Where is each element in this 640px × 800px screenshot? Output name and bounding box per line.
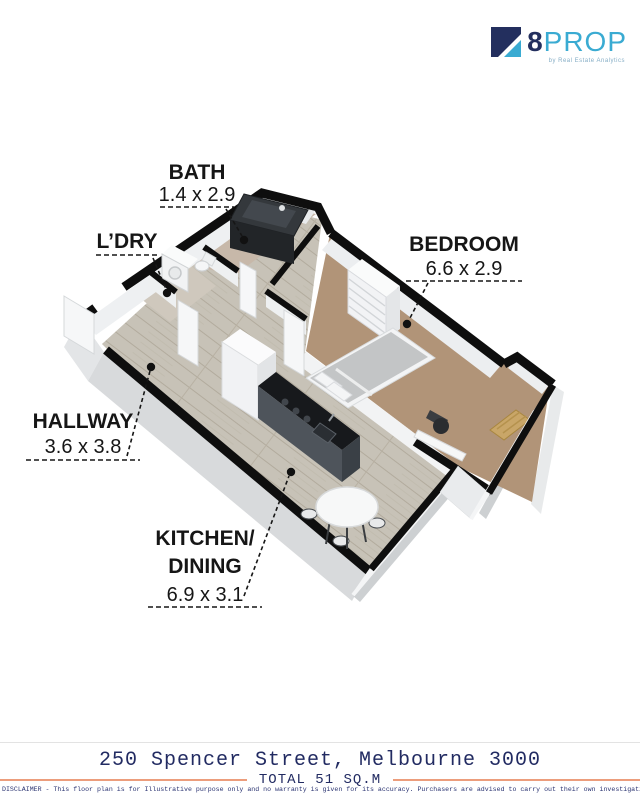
cooktop-burner <box>304 416 311 423</box>
label-kitchen: KITCHEN/ <box>155 527 254 550</box>
property-address: 250 Spencer Street, Melbourne 3000 <box>0 749 640 772</box>
leader-dot-bedroom <box>403 320 411 328</box>
label-bath: BATH <box>169 161 226 184</box>
leader-dot-bath <box>240 236 248 244</box>
cooktop-burner <box>293 408 300 415</box>
bath-door <box>240 262 256 318</box>
leader-dot-ldry <box>163 289 171 297</box>
accent-line-left <box>0 779 247 781</box>
label-bedroom: BEDROOM <box>409 233 519 256</box>
label-kitchen-dims: 6.9 x 3.1 <box>167 584 244 606</box>
accent-line-right <box>393 779 640 781</box>
bedroom-door <box>284 310 304 376</box>
dining-chair <box>301 509 317 519</box>
leader-dot-hallway <box>147 363 155 371</box>
label-hallway: HALLWAY <box>33 410 134 433</box>
office-chair <box>433 418 449 434</box>
laundry-door <box>178 300 198 366</box>
footer-divider <box>0 742 640 743</box>
shower-head <box>279 205 285 211</box>
label-ldry: L’DRY <box>96 230 157 253</box>
cooktop-burner <box>282 399 289 406</box>
label-dining: DINING <box>168 555 242 578</box>
leader-dot-kitchen <box>287 468 295 476</box>
label-hallway-dims: 3.6 x 3.8 <box>45 436 122 458</box>
label-bath-dims: 1.4 x 2.9 <box>159 184 236 206</box>
label-bedroom-dims: 6.6 x 2.9 <box>426 258 503 280</box>
flyer-page: 8PROP by Real Estate Analytics <box>0 0 640 800</box>
disclaimer-text: DISCLAIMER - This floor plan is for Illu… <box>2 786 638 793</box>
floor-plan: BATH 1.4 x 2.9 L’DRY BEDROOM 6.6 x 2.9 H… <box>0 0 640 700</box>
